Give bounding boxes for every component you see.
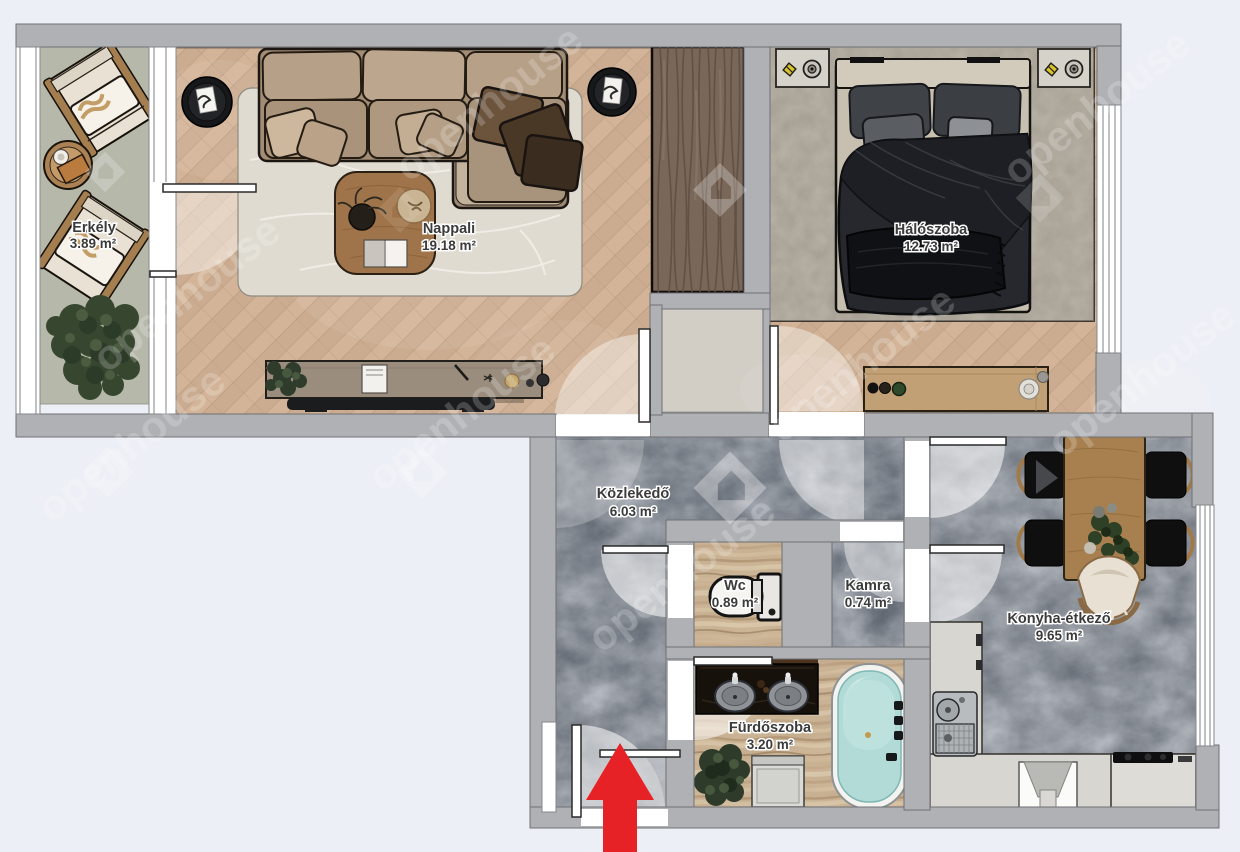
svg-text:Közlekedő: Közlekedő (597, 486, 670, 502)
svg-text:3.20 m²: 3.20 m² (747, 737, 794, 752)
svg-text:Kamra: Kamra (845, 578, 891, 594)
svg-text:0.89 m²: 0.89 m² (712, 595, 759, 610)
svg-text:Konyha-étkező: Konyha-étkező (1007, 611, 1110, 627)
svg-text:0.74 m²: 0.74 m² (845, 595, 892, 610)
svg-text:Erkély: Erkély (72, 220, 116, 236)
svg-text:6.03 m²: 6.03 m² (610, 504, 657, 519)
svg-text:Hálószoba: Hálószoba (895, 222, 968, 238)
svg-text:Fürdőszoba: Fürdőszoba (729, 720, 812, 736)
svg-text:Wc: Wc (724, 578, 746, 594)
svg-text:Nappali: Nappali (423, 221, 475, 237)
svg-text:9.65 m²: 9.65 m² (1036, 628, 1083, 643)
svg-text:19.18 m²: 19.18 m² (422, 238, 477, 253)
svg-text:12.73 m²: 12.73 m² (904, 239, 959, 254)
svg-text:3.89 m²: 3.89 m² (70, 236, 117, 251)
